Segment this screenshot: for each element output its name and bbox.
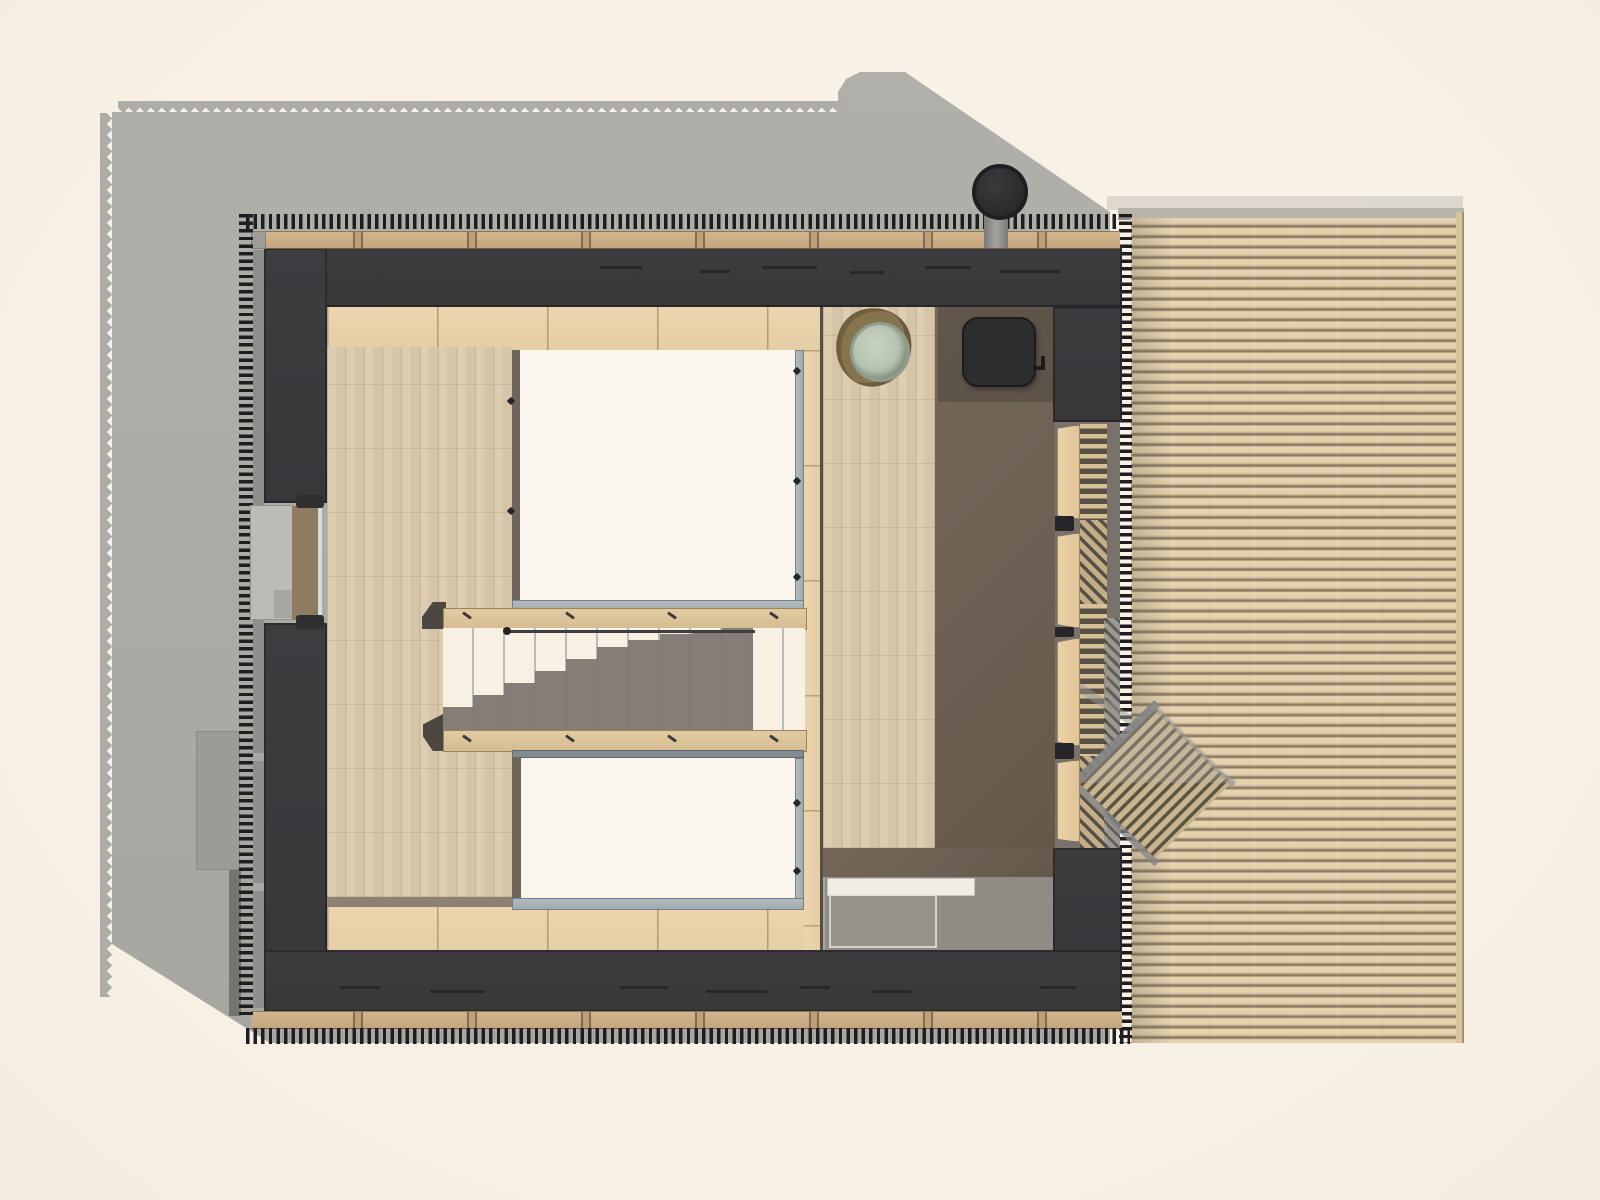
void2-opening — [521, 758, 795, 898]
window-glazing — [318, 503, 322, 627]
wall-detail-line — [925, 266, 971, 269]
void2-glass-rail-south — [512, 898, 804, 910]
wall-detail-line — [340, 986, 380, 989]
shadow-serration-left — [100, 113, 112, 997]
void2-glass-rail-north — [512, 750, 804, 758]
wall-detail-line — [800, 986, 830, 989]
exterior-platform — [196, 731, 240, 870]
deck-slats — [1131, 218, 1458, 1043]
stair-descending-steps — [443, 628, 805, 730]
wall-south — [264, 950, 1122, 1012]
ladder-rungs — [1080, 424, 1107, 520]
wall-detail-line — [600, 266, 642, 269]
window-jamb — [296, 615, 324, 629]
stove-handle — [1041, 356, 1045, 370]
deck-shade — [1132, 218, 1172, 1043]
floor-band-south — [327, 905, 805, 952]
eave-rail-cap — [251, 231, 266, 249]
window-sill-step — [274, 590, 292, 618]
east-room-floor — [823, 307, 940, 848]
shadow-serration-top — [118, 101, 846, 113]
wall-north — [264, 246, 1122, 307]
stair-stringer-north — [443, 608, 807, 630]
wall-detail-line — [1000, 270, 1060, 273]
wall-detail-line — [620, 986, 668, 989]
wall-east-upper — [1053, 307, 1122, 422]
wash-basin — [850, 322, 910, 382]
void1-edge — [512, 350, 520, 612]
screen-hatch — [1080, 520, 1107, 604]
wall-detail-line — [430, 990, 485, 993]
wall-lining-west — [253, 250, 264, 1008]
shelf-panel — [1057, 533, 1080, 628]
void2-edge — [512, 758, 521, 910]
roof-battens-south — [246, 1028, 1130, 1044]
shelf-panel — [1057, 760, 1080, 842]
wall-detail-line — [872, 990, 912, 993]
stair-stringer-south — [443, 730, 807, 752]
shelf-panel — [1057, 425, 1080, 519]
lining-joint — [253, 753, 264, 761]
eave-rail-south — [251, 1011, 1122, 1029]
floor-plan-canvas — [0, 0, 1600, 1200]
wall-detail-line — [700, 270, 730, 273]
window-jamb — [296, 495, 324, 508]
void1-opening — [520, 350, 795, 600]
wall-east-lower — [1053, 848, 1122, 952]
wall-detail-line — [850, 271, 884, 274]
chimney — [972, 164, 1028, 220]
wood-stove — [962, 317, 1036, 387]
stair-handrail — [508, 630, 755, 633]
handrail-post — [503, 627, 511, 635]
window-reveal — [292, 506, 318, 620]
deck-edge-right — [1456, 212, 1464, 1043]
shadow-floor-zone-south — [823, 848, 1055, 877]
wall-detail-line — [1040, 986, 1076, 989]
west-floor-edge — [327, 897, 515, 907]
wall-detail-line — [706, 990, 768, 993]
wall-west-upper — [264, 248, 327, 503]
lining-joint — [253, 883, 264, 891]
glass-screen — [829, 894, 937, 948]
wall-detail-line — [762, 266, 817, 269]
floor-band-center — [804, 350, 820, 950]
deck-lattice-gangway — [1079, 645, 1265, 875]
void2-glass-rail-east — [795, 758, 804, 910]
floor-band-north — [327, 307, 820, 350]
shelf-panel — [1057, 638, 1080, 746]
